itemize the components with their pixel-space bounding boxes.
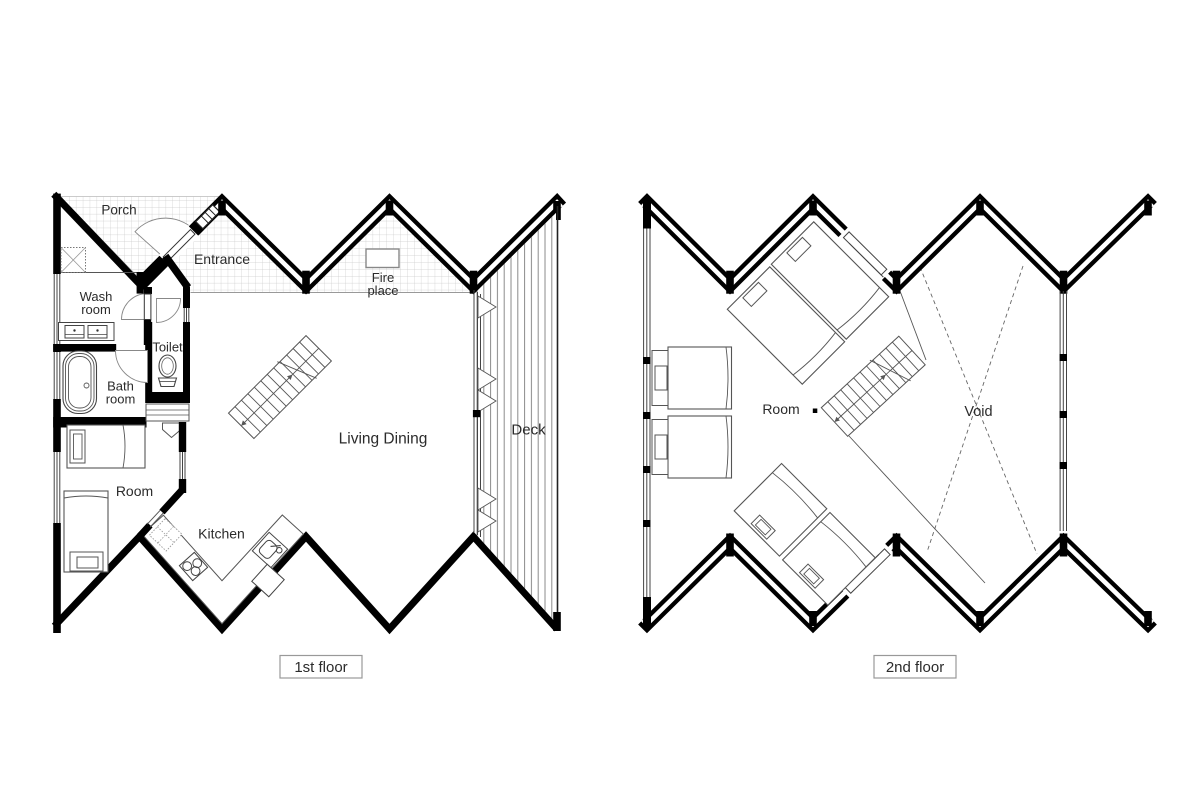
svg-text:Room: Room <box>762 401 799 417</box>
svg-text:room: room <box>106 392 136 407</box>
svg-text:Kitchen: Kitchen <box>198 526 245 542</box>
svg-text:Room: Room <box>116 483 153 499</box>
svg-text:Porch: Porch <box>101 203 136 218</box>
svg-text:Entrance: Entrance <box>194 251 250 267</box>
svg-text:Deck: Deck <box>511 422 546 439</box>
svg-text:2nd floor: 2nd floor <box>886 659 944 676</box>
svg-text:place: place <box>367 283 398 298</box>
svg-text:Void: Void <box>964 404 992 420</box>
svg-text:Toilet: Toilet <box>152 340 183 355</box>
svg-text:1st floor: 1st floor <box>294 659 347 676</box>
svg-text:Living Dining: Living Dining <box>339 431 428 448</box>
svg-text:room: room <box>81 302 111 317</box>
